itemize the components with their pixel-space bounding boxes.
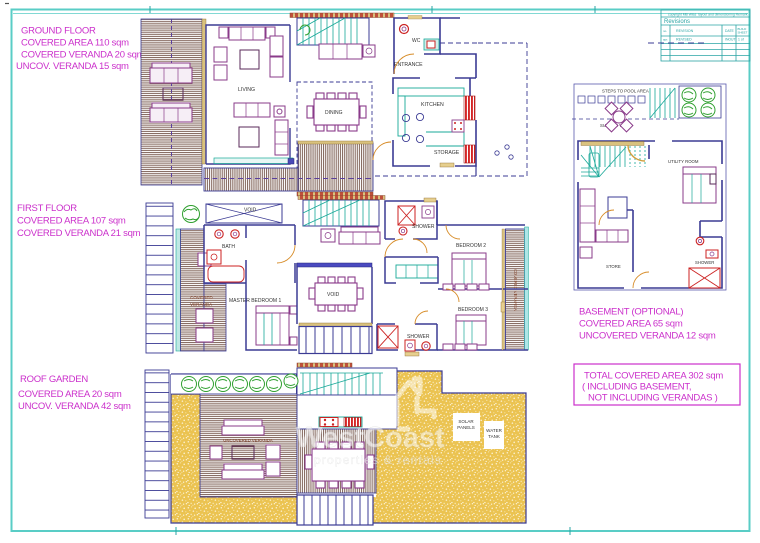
- svg-text:SHOWER: SHOWER: [407, 334, 430, 340]
- svg-text:COVERED AREA 65 sqm: COVERED AREA 65 sqm: [579, 319, 683, 330]
- svg-text:FIRST FLOOR: FIRST FLOOR: [17, 203, 77, 214]
- svg-text:LIVING: LIVING: [238, 87, 255, 93]
- svg-text:WC: WC: [412, 38, 421, 44]
- svg-text:DATE: DATE: [725, 29, 735, 33]
- svg-text:SHEET: SHEET: [738, 31, 748, 35]
- svg-text:VOID: VOID: [244, 208, 257, 214]
- svg-text:WestCoast: WestCoast: [295, 422, 445, 454]
- svg-text:COVERED AREA 107 sqm: COVERED AREA 107 sqm: [17, 216, 126, 227]
- svg-text:1 of: 1 of: [738, 38, 744, 42]
- svg-text:ENTRANCE: ENTRANCE: [394, 62, 423, 68]
- svg-text:REVISION: REVISION: [676, 29, 694, 33]
- svg-text:( INCLUDING BASEMENT,: ( INCLUDING BASEMENT,: [582, 382, 691, 393]
- svg-text:properties & rentals: properties & rentals: [314, 453, 442, 467]
- svg-text:TANK: TANK: [488, 434, 500, 439]
- svg-text:BEDROOM 2: BEDROOM 2: [456, 243, 486, 249]
- svg-text:INOUT: INOUT: [725, 38, 736, 42]
- svg-text:copyright MB villas layout an: copyright MB villas layout and dimension…: [668, 13, 748, 17]
- svg-text:COVERED: COVERED: [190, 295, 213, 300]
- svg-text:VOID: VOID: [327, 292, 340, 298]
- svg-text:COVERED VERANDA: COVERED VERANDA: [513, 269, 518, 311]
- svg-text:COVERED AREA 110 sqm: COVERED AREA 110 sqm: [21, 38, 129, 49]
- svg-text:SHOWER: SHOWER: [412, 224, 435, 230]
- svg-text:BEDROOM 3: BEDROOM 3: [458, 307, 488, 313]
- svg-text:KITCHEN: KITCHEN: [421, 102, 444, 108]
- svg-text:GROUND FLOOR: GROUND FLOOR: [21, 26, 96, 37]
- svg-text:UNCOVERED VERANDA 12 sqm: UNCOVERED VERANDA 12 sqm: [579, 331, 716, 342]
- svg-text:UNCOV. VERANDA 42 sqm: UNCOV. VERANDA 42 sqm: [18, 401, 131, 412]
- svg-text:apr.: apr.: [663, 38, 668, 42]
- svg-text:ROOF GARDEN: ROOF GARDEN: [20, 374, 88, 385]
- svg-text:COVERED VERANDA 20 sqm: COVERED VERANDA 20 sqm: [21, 50, 145, 61]
- svg-text:UNCOV. VERANDA 15 sqm: UNCOV. VERANDA 15 sqm: [16, 61, 129, 72]
- svg-text:REVISED: REVISED: [676, 38, 692, 42]
- svg-text:TOTAL COVERED AREA 302 sqm: TOTAL COVERED AREA 302 sqm: [584, 371, 723, 382]
- svg-text:NOT INCLUDING VERANDAS ): NOT INCLUDING VERANDAS ): [588, 393, 718, 404]
- svg-text:SOLAR: SOLAR: [458, 419, 474, 424]
- svg-text:UNCOVERED VERANDA: UNCOVERED VERANDA: [223, 438, 273, 443]
- svg-text:STORE: STORE: [606, 264, 621, 269]
- svg-text:COVERED VERANDA 21 sqm: COVERED VERANDA 21 sqm: [17, 228, 141, 239]
- svg-text:VERANDA: VERANDA: [190, 302, 213, 307]
- svg-text:COVERED AREA 20 sqm: COVERED AREA 20 sqm: [18, 389, 122, 400]
- svg-text:PANELS: PANELS: [457, 425, 474, 430]
- svg-text:STEPS TO POOL AREA: STEPS TO POOL AREA: [602, 89, 649, 94]
- svg-text:WATER: WATER: [486, 428, 502, 433]
- svg-text:Revisions: Revisions: [664, 19, 690, 25]
- svg-text:DINING: DINING: [325, 110, 343, 116]
- svg-text:SHOWER: SHOWER: [695, 260, 714, 265]
- svg-text:BASEMENT (OPTIONAL): BASEMENT (OPTIONAL): [579, 307, 683, 318]
- svg-text:BATH: BATH: [222, 244, 235, 250]
- svg-text:MASTER BEDROOM 1: MASTER BEDROOM 1: [229, 298, 281, 304]
- svg-text:STORAGE: STORAGE: [434, 150, 460, 156]
- svg-text:UTILITY ROOM: UTILITY ROOM: [668, 159, 699, 164]
- svg-text:no.: no.: [663, 29, 667, 33]
